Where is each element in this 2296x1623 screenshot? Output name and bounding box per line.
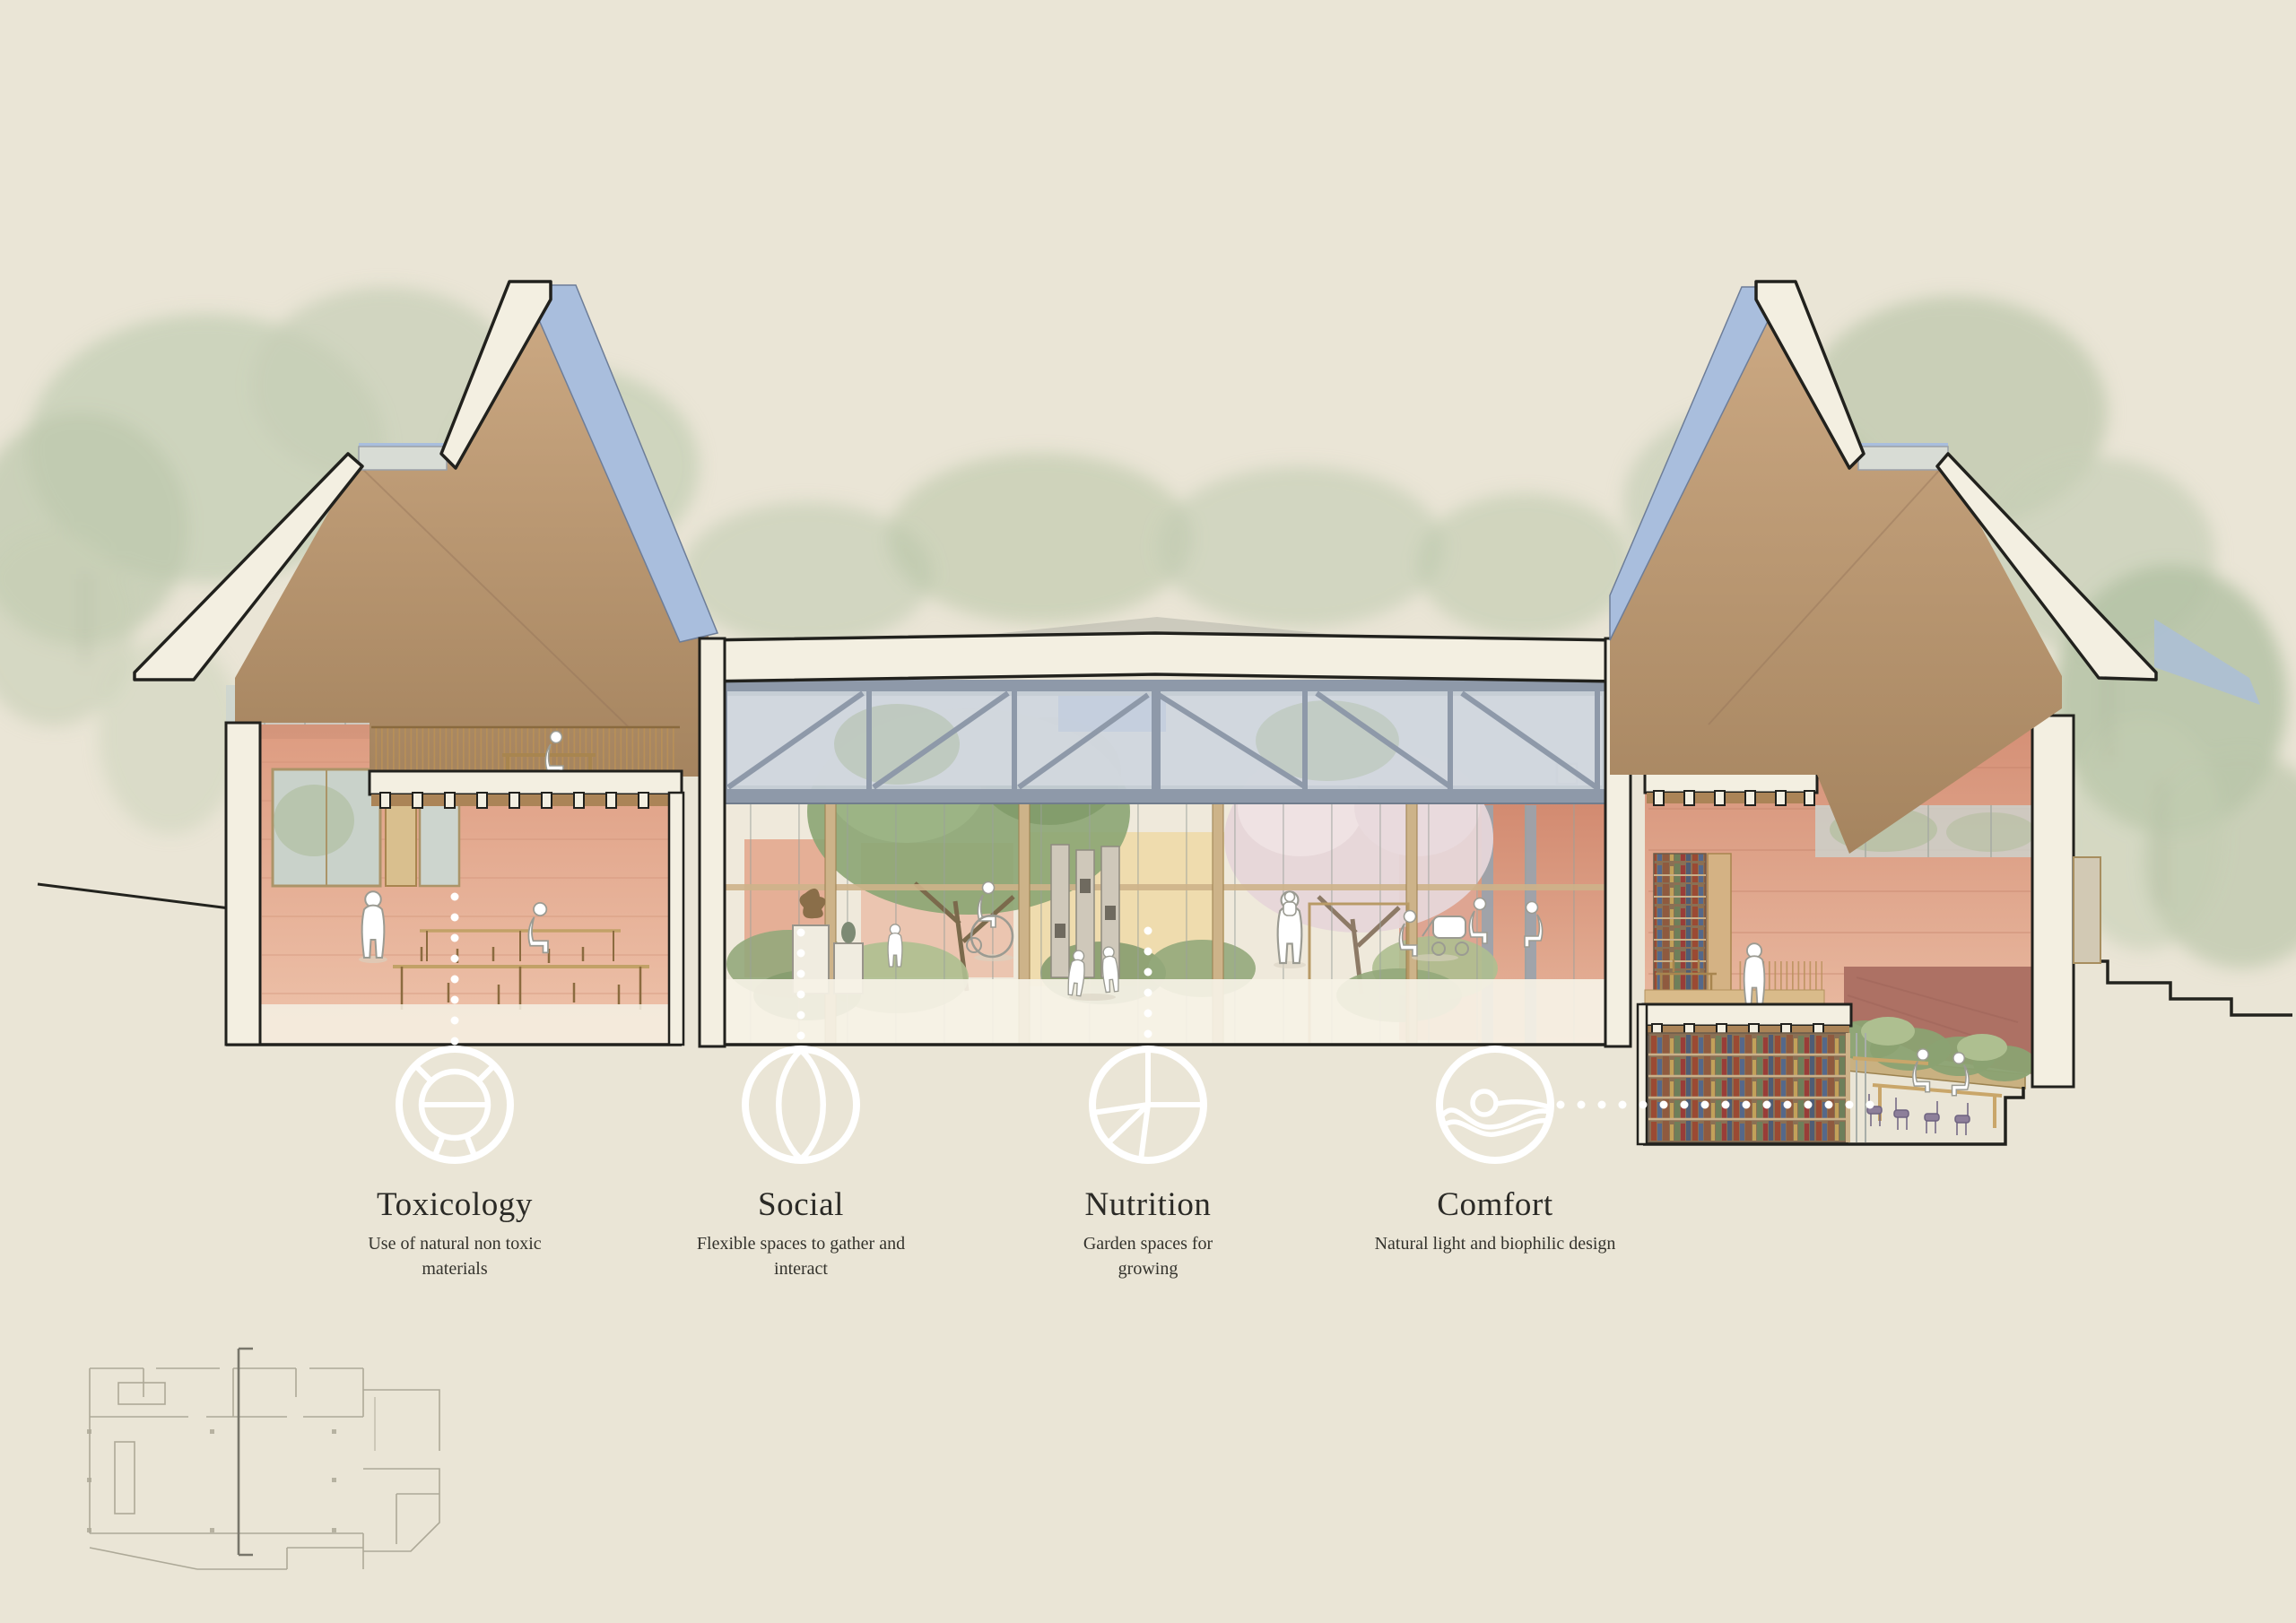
- pillar-description: Natural light and biophilic design: [1373, 1231, 1617, 1256]
- left-mezzanine: [370, 727, 682, 808]
- section-cut-line: [239, 1349, 253, 1555]
- pillar-label-nutrition: Nutrition Garden spaces for growing: [1060, 1187, 1236, 1281]
- key-floor-plan: [87, 1349, 439, 1569]
- stroller: [1433, 916, 1465, 938]
- pillar-title: Social: [683, 1187, 918, 1224]
- atrium-fascia: [703, 633, 1622, 681]
- library-chairs: [1867, 1094, 1970, 1135]
- clerestory: [1858, 447, 1948, 470]
- bookshelf: [1648, 1033, 1848, 1142]
- pillar-title: Nutrition: [1060, 1187, 1236, 1224]
- pillar-title: Toxicology: [342, 1187, 568, 1224]
- pillar-label-social: Social Flexible spaces to gather and int…: [683, 1187, 918, 1281]
- presentation-board: Toxicology Use of natural non toxic mate…: [0, 0, 2296, 1623]
- central-atrium: [700, 633, 1631, 1046]
- pillar-label-toxicology: Toxicology Use of natural non toxic mate…: [342, 1187, 568, 1281]
- pillar-description: Garden spaces for growing: [1060, 1231, 1236, 1282]
- pillar-title: Comfort: [1373, 1187, 1617, 1224]
- ring-segments-icon: [399, 1049, 510, 1160]
- circle-lens-icon: [745, 1049, 857, 1160]
- segmented-plate-icon: [1092, 1049, 1204, 1160]
- clerestory: [359, 447, 447, 470]
- pillar-description: Flexible spaces to gather and interact: [683, 1231, 918, 1282]
- pillar-label-comfort: Comfort Natural light and biophilic desi…: [1373, 1187, 1617, 1256]
- pillar-icons: [399, 1049, 1551, 1160]
- wall-cut-poche: [2032, 716, 2074, 1087]
- building-section-illustration: [0, 0, 2296, 1623]
- wall-cut-poche: [226, 723, 260, 1045]
- wave-rest-icon: [1439, 1049, 1551, 1160]
- steel-truss: [717, 680, 1607, 803]
- pillar-description: Use of natural non toxic materials: [342, 1231, 568, 1282]
